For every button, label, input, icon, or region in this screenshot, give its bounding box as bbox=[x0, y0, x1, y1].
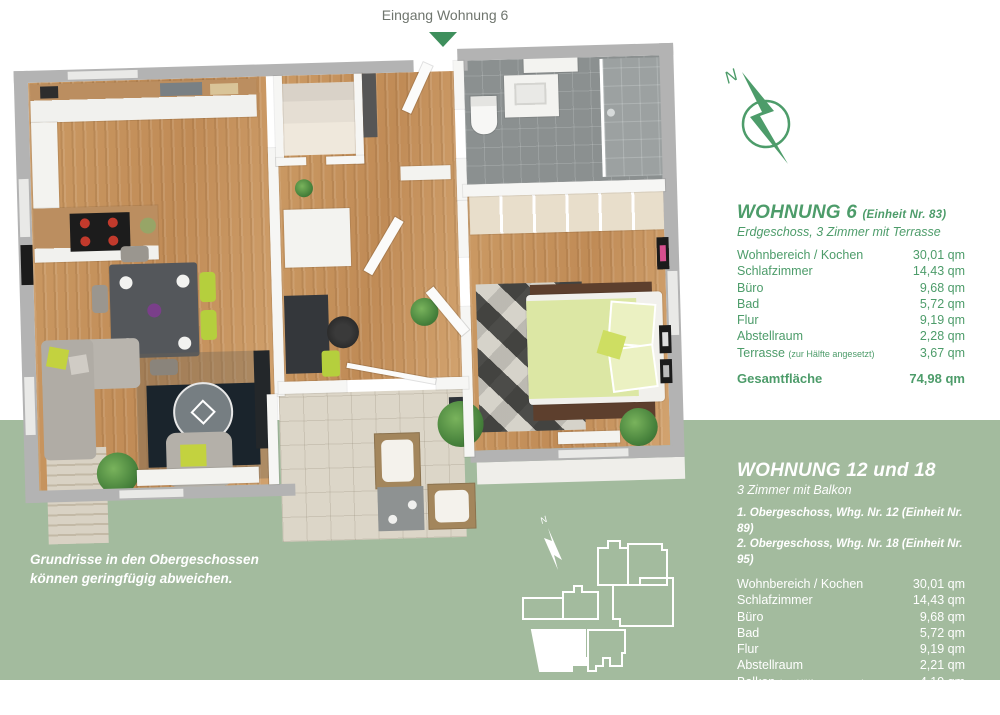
room-area: 4,19 qm bbox=[920, 675, 965, 691]
room-label: Schlafzimmer bbox=[737, 593, 813, 609]
interior-wall bbox=[278, 380, 346, 394]
dining-chair-lime bbox=[199, 272, 216, 302]
bath-basin bbox=[514, 82, 547, 105]
entrance-label: Eingang Wohnung 6 bbox=[330, 7, 560, 23]
room-label: Bad bbox=[737, 297, 759, 313]
unit-12-18-title: WOHNUNG 12 und 18 bbox=[737, 460, 965, 482]
floor-line: 2. Obergeschoss, Whg. Nr. 18 (Einheit Nr… bbox=[737, 537, 965, 568]
picture-art bbox=[660, 245, 666, 261]
office-side-chair-lime bbox=[321, 350, 340, 376]
room-area: 14,43 qm bbox=[913, 264, 965, 280]
room-area: 30,01 qm bbox=[913, 577, 965, 593]
unit-6-title-text: WOHNUNG 6 bbox=[737, 202, 857, 223]
dining-chair-lime bbox=[200, 310, 217, 340]
room-label: Abstellraum bbox=[737, 658, 803, 674]
window bbox=[19, 179, 31, 237]
compass-north-icon: N bbox=[712, 56, 812, 181]
terrace-table bbox=[377, 486, 424, 531]
disclaimer-line2: können geringfügig abweichen. bbox=[30, 569, 259, 588]
room-label: Schlafzimmer bbox=[737, 264, 813, 280]
interior-wall bbox=[453, 61, 464, 109]
room-label: Büro bbox=[737, 610, 763, 626]
room-label: Wohnbereich / Kochen bbox=[737, 577, 863, 593]
room-label: Abstellraum bbox=[737, 329, 803, 345]
storage-wall bbox=[276, 157, 306, 166]
area-row: Flur9,19 qm bbox=[737, 313, 965, 329]
storage-shelves bbox=[282, 82, 356, 156]
area-row: Terrasse (zur Hälfte angesetzt)3,67 qm bbox=[737, 346, 965, 362]
floorplan-brochure-page: { "entrance": { "label": "Eingang Wohnun… bbox=[0, 0, 1000, 680]
coffee-machine bbox=[40, 86, 58, 98]
room-area: 9,19 qm bbox=[920, 313, 965, 329]
unit-6-title-note: (Einheit Nr. 83) bbox=[863, 209, 947, 221]
interior-wall bbox=[436, 377, 468, 390]
disclaimer-line1: Grundrisse in den Obergeschossen bbox=[30, 550, 259, 569]
floor-line: 1. Obergeschoss, Whg. Nr. 12 (Einheit Nr… bbox=[737, 506, 965, 537]
shower bbox=[599, 57, 663, 177]
room-label: Flur bbox=[737, 642, 759, 658]
dining-chair bbox=[92, 285, 109, 313]
room-label: Flur bbox=[737, 313, 759, 329]
room-label: Balkon (zur Hälfte angesetzt) bbox=[737, 675, 865, 691]
area-row: Abstellraum2,21 qm bbox=[737, 658, 965, 674]
sofa-pillow bbox=[68, 354, 89, 375]
picture-art bbox=[662, 332, 668, 346]
cutting-board bbox=[210, 83, 238, 95]
lounge-cushion bbox=[434, 490, 469, 523]
kitchen-sink bbox=[160, 82, 202, 96]
room-area: 5,72 qm bbox=[920, 297, 965, 313]
dining-chair bbox=[120, 246, 148, 263]
picture-frame bbox=[659, 325, 672, 353]
sofa-pillow-lime bbox=[46, 347, 69, 370]
room-area: 2,21 qm bbox=[920, 658, 965, 674]
interior-wall bbox=[267, 394, 280, 484]
disclaimer: Grundrisse in den Obergeschossen können … bbox=[30, 550, 259, 588]
room-area: 3,67 qm bbox=[920, 346, 965, 362]
compass-n-label: N bbox=[721, 65, 741, 88]
area-row: Flur9,19 qm bbox=[737, 642, 965, 658]
hall-console bbox=[400, 165, 450, 180]
picture-frame bbox=[20, 245, 33, 285]
total-area: 74,98 qm bbox=[909, 371, 965, 386]
room-area: 2,28 qm bbox=[920, 329, 965, 345]
room-area: 9,19 qm bbox=[920, 642, 965, 658]
entrance-arrow-icon bbox=[429, 32, 457, 47]
area-row: Schlafzimmer14,43 qm bbox=[737, 593, 965, 609]
toilet bbox=[470, 96, 497, 135]
highlighted-building bbox=[532, 630, 588, 671]
unit-6-subtitle: Erdgeschoss, 3 Zimmer mit Terrasse bbox=[737, 225, 965, 239]
site-plan-n-label: N bbox=[539, 514, 550, 526]
site-plan-north-arrow-icon bbox=[544, 528, 562, 570]
room-label: Terrasse (zur Hälfte angesetzt) bbox=[737, 346, 874, 362]
armchair-pillow bbox=[180, 444, 207, 467]
floor-plan bbox=[7, 41, 693, 554]
floor-lines: 1. Obergeschoss, Whg. Nr. 12 (Einheit Nr… bbox=[737, 506, 965, 568]
room-area: 30,01 qm bbox=[913, 248, 965, 264]
area-row: Wohnbereich / Kochen30,01 qm bbox=[737, 248, 965, 264]
unit-6-title: WOHNUNG 6 (Einheit Nr. 83) bbox=[737, 202, 965, 224]
total-label: Gesamtfläche bbox=[737, 700, 822, 715]
kitchen-tall-unit bbox=[31, 122, 59, 209]
living-sideboard bbox=[137, 467, 259, 486]
room-area: 5,72 qm bbox=[920, 626, 965, 642]
office-cabinet bbox=[284, 208, 352, 268]
unit-12-18-subtitle: 3 Zimmer mit Balkon bbox=[737, 483, 965, 497]
unit-12-18-panel: WOHNUNG 12 und 18 3 Zimmer mit Balkon 1.… bbox=[737, 460, 965, 715]
unit-12-18-area-table: Wohnbereich / Kochen30,01 qm Schlafzimme… bbox=[737, 577, 965, 715]
unit-6-area-table: Wohnbereich / Kochen30,01 qm Schlafzimme… bbox=[737, 248, 965, 386]
area-row: Schlafzimmer14,43 qm bbox=[737, 264, 965, 280]
storage-wall bbox=[326, 156, 364, 165]
picture-frame bbox=[656, 237, 669, 269]
room-area: 14,43 qm bbox=[913, 593, 965, 609]
room-label: Bad bbox=[737, 626, 759, 642]
room-area: 9,68 qm bbox=[920, 281, 965, 297]
picture-art bbox=[663, 365, 669, 377]
area-row: Wohnbereich / Kochen30,01 qm bbox=[737, 577, 965, 593]
room-label: Büro bbox=[737, 281, 763, 297]
total-area: 75,43 qm bbox=[909, 700, 965, 715]
site-plan-map: N bbox=[510, 508, 685, 676]
room-area: 9,68 qm bbox=[920, 610, 965, 626]
bedroom-bench bbox=[558, 431, 620, 445]
area-row: Bad5,72 qm bbox=[737, 626, 965, 642]
total-label: Gesamtfläche bbox=[737, 371, 822, 386]
area-row: Abstellraum2,28 qm bbox=[737, 329, 965, 345]
picture-frame bbox=[660, 359, 673, 383]
interior-wall bbox=[457, 201, 469, 257]
area-row: Büro9,68 qm bbox=[737, 281, 965, 297]
room-label: Wohnbereich / Kochen bbox=[737, 248, 863, 264]
unit-6-panel: WOHNUNG 6 (Einheit Nr. 83) Erdgeschoss, … bbox=[737, 202, 965, 386]
cooktop bbox=[70, 212, 131, 252]
window bbox=[24, 377, 36, 435]
total-row: Gesamtfläche75,43 qm bbox=[737, 700, 965, 715]
shaft bbox=[362, 73, 378, 137]
wardrobe bbox=[469, 191, 664, 234]
area-row: Büro9,68 qm bbox=[737, 610, 965, 626]
total-row: Gesamtfläche74,98 qm bbox=[737, 371, 965, 386]
area-row: Balkon (zur Hälfte angesetzt)4,19 qm bbox=[737, 675, 965, 691]
lounge-cushion bbox=[381, 439, 414, 482]
area-row: Bad5,72 qm bbox=[737, 297, 965, 313]
